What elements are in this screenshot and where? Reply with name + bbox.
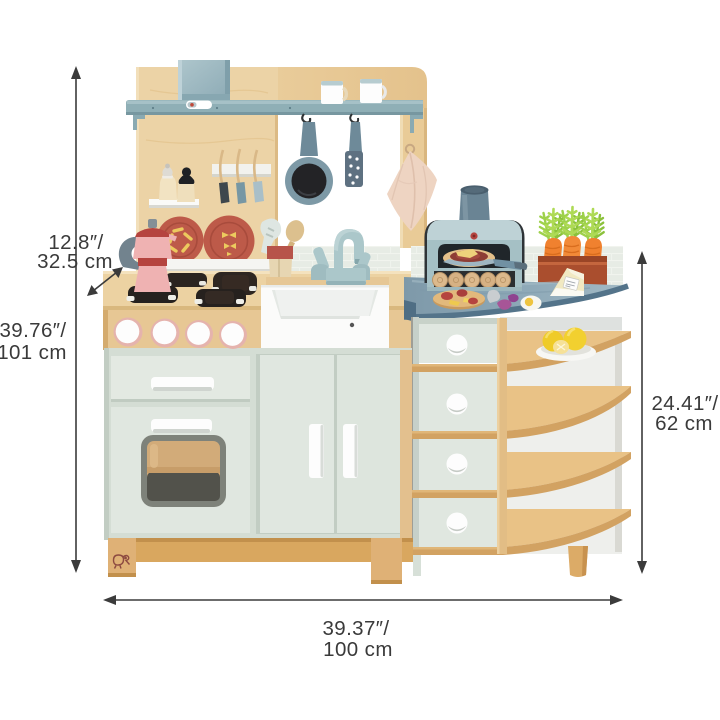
svg-text:100 cm: 100 cm bbox=[323, 638, 393, 661]
svg-text:39.76″/: 39.76″/ bbox=[0, 319, 67, 342]
svg-text:101 cm: 101 cm bbox=[0, 341, 67, 364]
svg-text:39.37″/: 39.37″/ bbox=[322, 617, 389, 640]
svg-text:62 cm: 62 cm bbox=[655, 412, 713, 435]
svg-text:32.5 cm: 32.5 cm bbox=[37, 250, 113, 273]
